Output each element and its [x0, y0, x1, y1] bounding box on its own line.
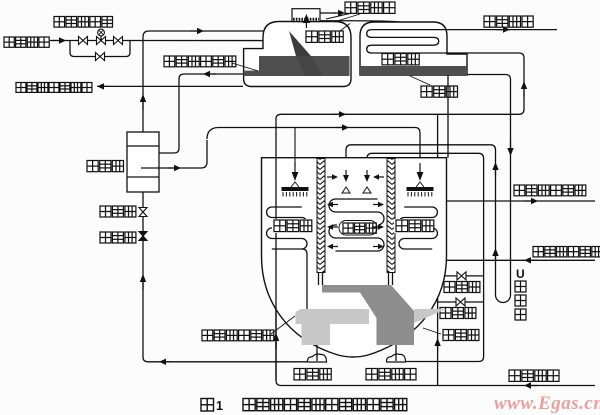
- svg-text:U: U: [516, 267, 525, 281]
- svg-text:1: 1: [216, 399, 223, 413]
- svg-text:www.Egas.cn: www.Egas.cn: [494, 393, 600, 414]
